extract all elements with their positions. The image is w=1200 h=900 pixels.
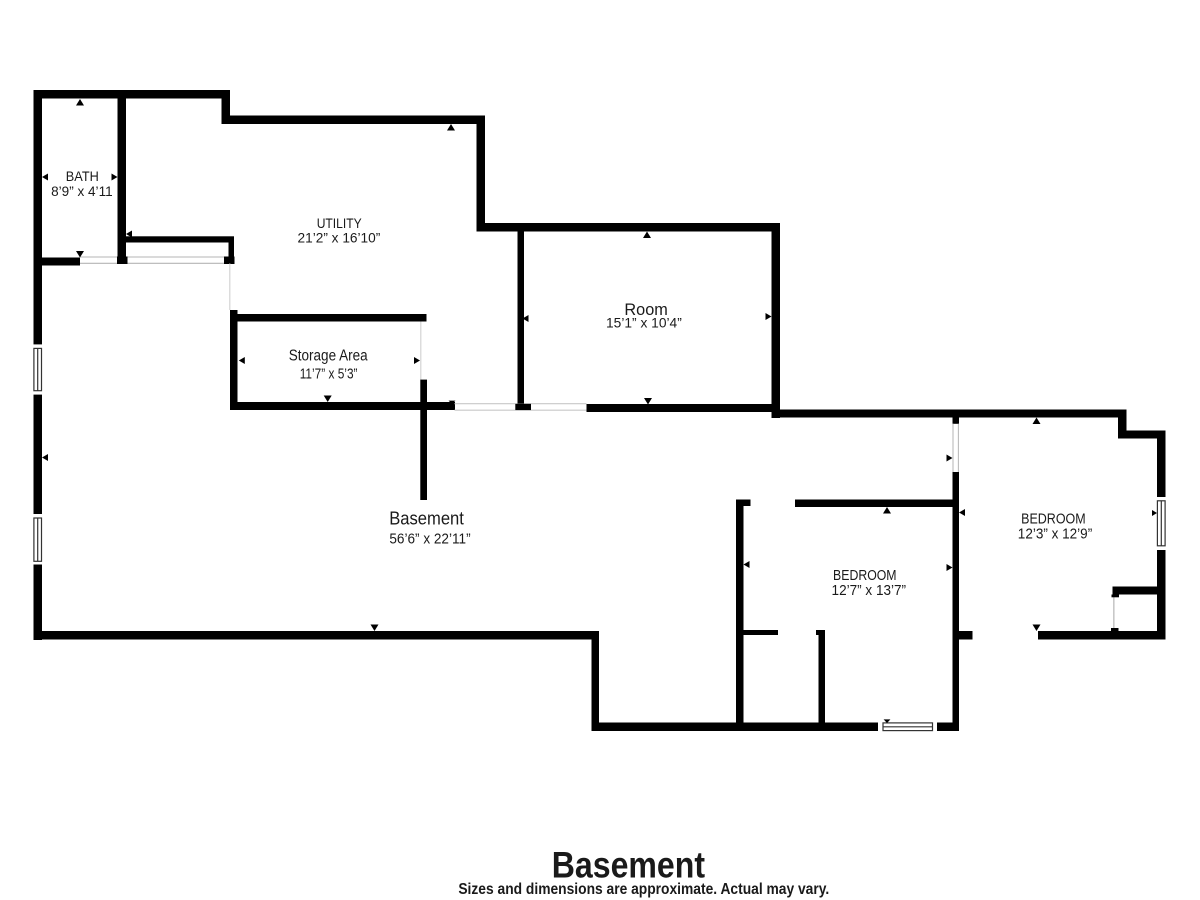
svg-text:15’1” x 10’4”: 15’1” x 10’4” (606, 315, 682, 331)
svg-text:BATH: BATH (66, 169, 99, 184)
svg-text:BEDROOM: BEDROOM (833, 568, 897, 584)
svg-text:12’3” x 12’9”: 12’3” x 12’9” (1018, 527, 1093, 543)
svg-text:Storage Area: Storage Area (289, 348, 368, 365)
svg-text:12’7” x 13’7”: 12’7” x 13’7” (832, 583, 907, 599)
svg-text:BEDROOM: BEDROOM (1021, 511, 1086, 527)
svg-text:11’7” x 5’3”: 11’7” x 5’3” (300, 367, 358, 383)
svg-text:Sizes and dimensions are appro: Sizes and dimensions are approximate. Ac… (458, 881, 829, 898)
svg-text:21’2” x 16’10”: 21’2” x 16’10” (298, 229, 381, 245)
svg-text:Basement: Basement (389, 507, 464, 528)
svg-text:56’6” x 22’11”: 56’6” x 22’11” (389, 532, 470, 548)
svg-text:Basement: Basement (552, 845, 705, 886)
svg-text:8’9” x 4’11: 8’9” x 4’11 (51, 184, 113, 199)
